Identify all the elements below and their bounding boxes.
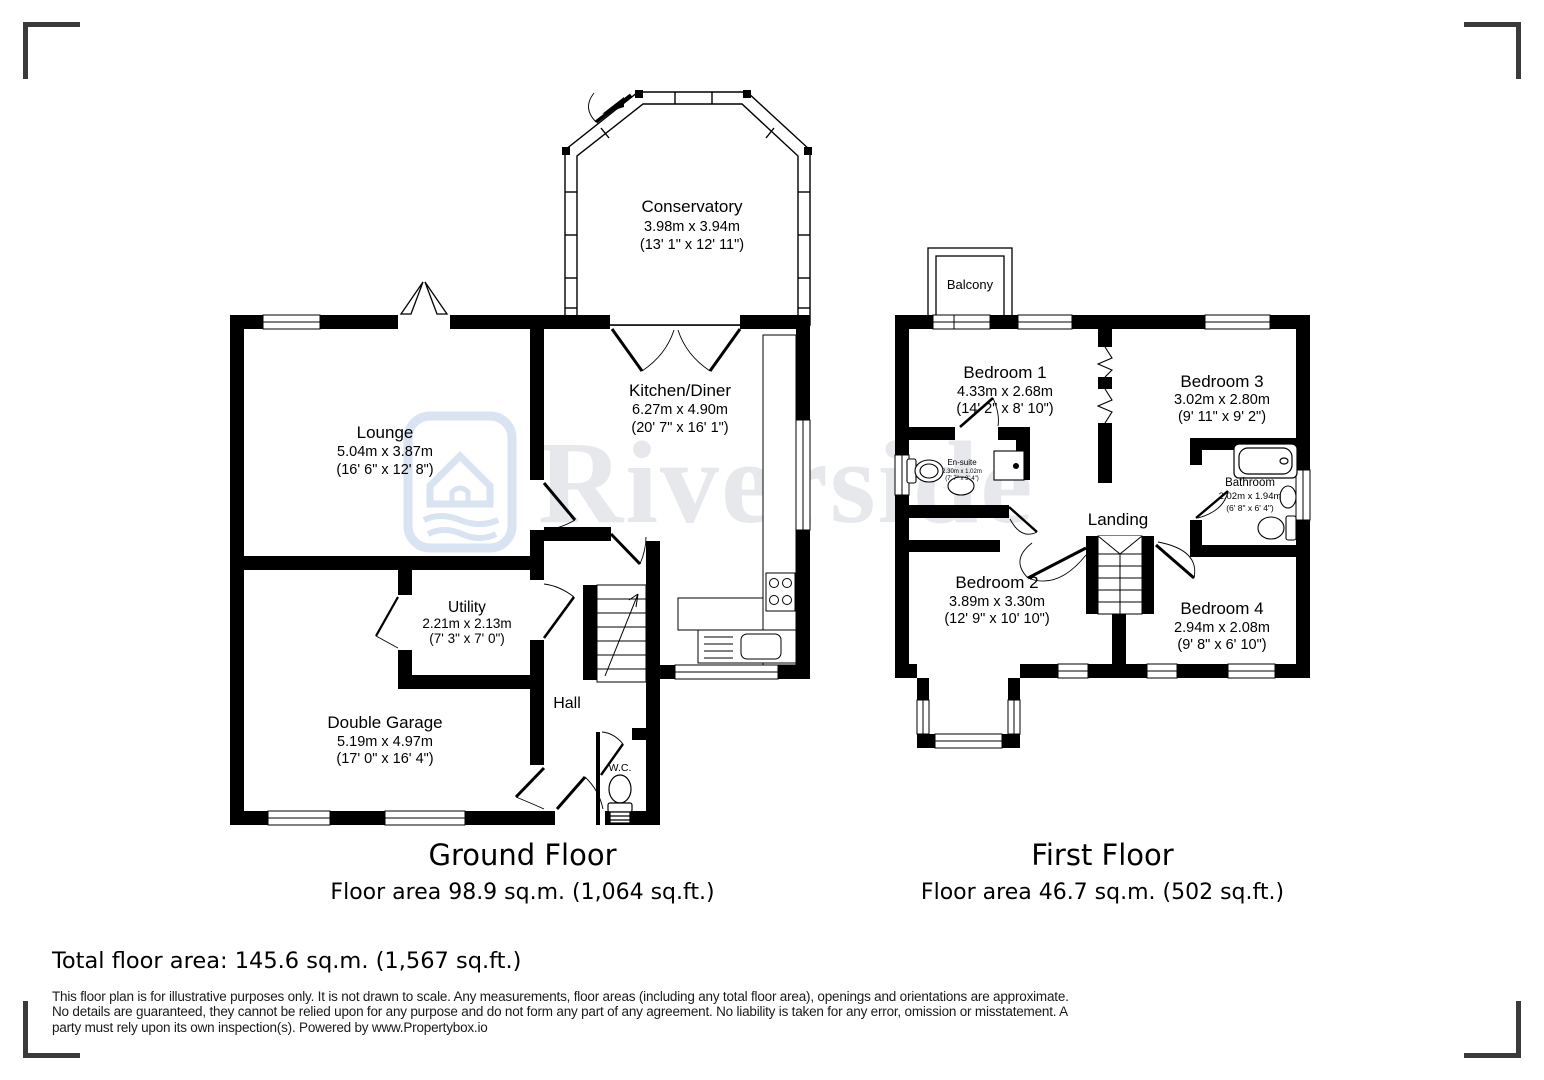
svg-text:3.98m x 3.94m: 3.98m x 3.94m: [644, 219, 740, 235]
first-floor-caption: First Floor Floor area 46.7 sq.m. (502 s…: [890, 838, 1315, 905]
svg-text:(9' 8" x 6' 10"): (9' 8" x 6' 10"): [1177, 637, 1266, 653]
svg-text:5.19m x 4.97m: 5.19m x 4.97m: [337, 734, 433, 750]
svg-text:5.04m x 3.87m: 5.04m x 3.87m: [337, 444, 433, 460]
frame-corner-bottom-right: [1464, 1001, 1521, 1058]
svg-text:(7' 7" x 3' 4"): (7' 7" x 3' 4"): [945, 476, 979, 482]
svg-text:(20' 7" x 16' 1"): (20' 7" x 16' 1"): [631, 420, 728, 436]
room-label-double-garage: Double Garage: [327, 713, 442, 732]
stove-icon: [766, 573, 795, 611]
room-label-wc: W.C.: [609, 762, 632, 774]
stairs: [597, 585, 646, 682]
ground-floor-area: Floor area 98.9 sq.m. (1,064 sq.ft.): [225, 880, 820, 905]
svg-text:(6' 8" x 6' 4"): (6' 8" x 6' 4"): [1226, 503, 1274, 513]
room-label-bathroom: Bathroom: [1225, 477, 1275, 489]
toilet-icon: [608, 775, 632, 823]
svg-text:3.02m x 2.80m: 3.02m x 2.80m: [1174, 392, 1270, 408]
first-floor-plan: Balcony Bedroom 1 4.33m x 2.68m (14' 2" …: [890, 240, 1315, 755]
room-label-bedroom-3: Bedroom 3: [1180, 372, 1263, 391]
disclaimer-text: This floor plan is for illustrative purp…: [52, 989, 1077, 1035]
room-label-conservatory: Conservatory: [641, 197, 743, 216]
kitchen-sink-icon: [698, 630, 796, 663]
svg-text:(13' 1" x 12' 11"): (13' 1" x 12' 11"): [640, 237, 744, 253]
floorplan-page: Riverside: [0, 0, 1544, 1080]
svg-text:2.21m x 2.13m: 2.21m x 2.13m: [422, 616, 511, 631]
room-label-kitchen-diner: Kitchen/Diner: [629, 381, 731, 400]
room-label-hall: Hall: [553, 695, 581, 712]
ground-floor-plan: Conservatory 3.98m x 3.94m (13' 1" x 12'…: [225, 80, 820, 835]
svg-text:6.27m x 4.90m: 6.27m x 4.90m: [632, 402, 728, 418]
svg-text:(16' 6" x 12' 8"): (16' 6" x 12' 8"): [336, 462, 433, 478]
room-label-lounge: Lounge: [357, 423, 414, 442]
frame-corner-top-right: [1464, 22, 1521, 79]
room-label-landing: Landing: [1088, 510, 1149, 529]
shower-icon: [994, 451, 1024, 480]
room-label-en-suite: En-suite: [947, 458, 977, 467]
room-label-bedroom-1: Bedroom 1: [963, 363, 1046, 382]
svg-text:(12' 9" x 10' 10"): (12' 9" x 10' 10"): [944, 611, 1049, 627]
room-label-balcony: Balcony: [947, 277, 994, 292]
ground-floor-caption: Ground Floor Floor area 98.9 sq.m. (1,06…: [225, 838, 820, 905]
svg-text:2.94m x 2.08m: 2.94m x 2.08m: [1174, 620, 1270, 636]
svg-text:(17' 0" x 16' 4"): (17' 0" x 16' 4"): [336, 751, 433, 767]
svg-text:2.02m x 1.94m: 2.02m x 1.94m: [1219, 491, 1282, 502]
total-floor-area: Total floor area: 145.6 sq.m. (1,567 sq.…: [52, 948, 521, 974]
room-label-utility: Utility: [448, 599, 486, 616]
bathtub-icon: [1234, 444, 1297, 478]
bathroom-toilet-icon: [1258, 516, 1296, 540]
bathroom-sink-icon: [1280, 486, 1296, 508]
svg-text:4.33m x 2.68m: 4.33m x 2.68m: [957, 384, 1053, 400]
ensuite-toilet-icon: [907, 459, 943, 483]
frame-corner-top-left: [23, 22, 80, 79]
svg-text:(9' 11" x 9' 2"): (9' 11" x 9' 2"): [1178, 409, 1266, 425]
svg-text:(7' 3" x 7' 0"): (7' 3" x 7' 0"): [429, 631, 505, 646]
room-label-bedroom-2: Bedroom 2: [955, 573, 1038, 592]
svg-text:2.30m x 1.02m: 2.30m x 1.02m: [942, 469, 982, 475]
ground-floor-title: Ground Floor: [225, 838, 820, 872]
svg-text:3.89m x 3.30m: 3.89m x 3.30m: [949, 594, 1045, 610]
stairs: [1098, 536, 1142, 614]
first-floor-area: Floor area 46.7 sq.m. (502 sq.ft.): [890, 880, 1315, 905]
first-floor-title: First Floor: [890, 838, 1315, 872]
svg-text:(14' 2" x 8' 10"): (14' 2" x 8' 10"): [956, 401, 1053, 417]
room-label-bedroom-4: Bedroom 4: [1180, 599, 1263, 618]
